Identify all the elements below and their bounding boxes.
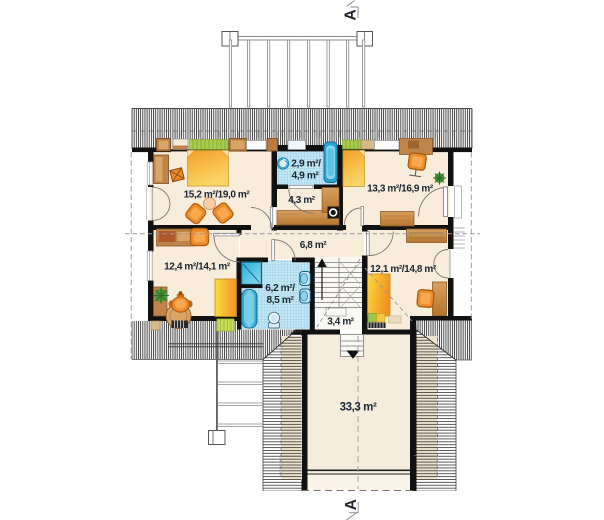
- svg-text:A: A: [343, 10, 360, 21]
- svg-text:4,3 m²: 4,3 m²: [288, 195, 316, 206]
- svg-text:6,8 m²: 6,8 m²: [300, 240, 328, 251]
- svg-text:6,2 m²/: 6,2 m²/: [265, 283, 295, 294]
- svg-text:12,1 m²/14,8 m²: 12,1 m²/14,8 m²: [370, 264, 437, 275]
- svg-text:A: A: [343, 499, 360, 510]
- svg-text:3,4 m²: 3,4 m²: [327, 317, 355, 328]
- svg-text:12,4 m²/14,1 m²: 12,4 m²/14,1 m²: [164, 262, 231, 273]
- svg-text:13,3 m²/16,9 m²: 13,3 m²/16,9 m²: [367, 184, 434, 195]
- svg-text:33,3 m²: 33,3 m²: [340, 402, 377, 414]
- svg-text:2,9 m²/: 2,9 m²/: [291, 159, 321, 170]
- svg-text:4,9 m²: 4,9 m²: [291, 171, 319, 182]
- svg-text:8,5 m²: 8,5 m²: [266, 295, 294, 306]
- svg-text:15,2 m²/19,0 m²: 15,2 m²/19,0 m²: [184, 190, 251, 201]
